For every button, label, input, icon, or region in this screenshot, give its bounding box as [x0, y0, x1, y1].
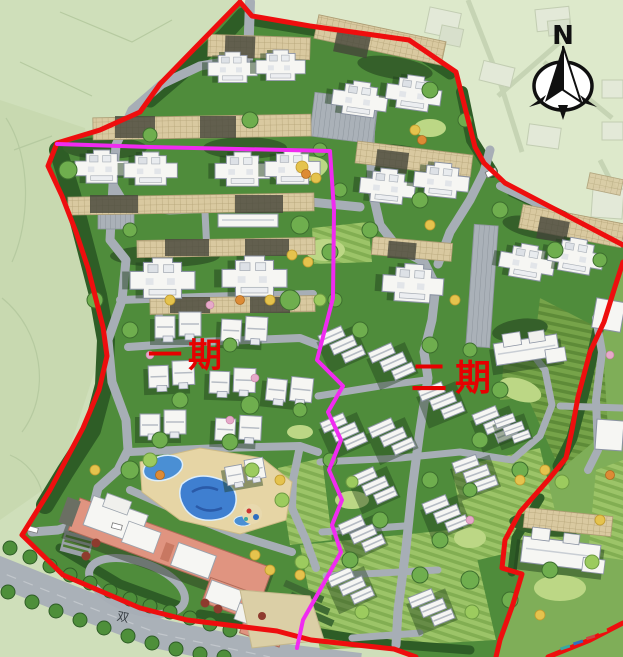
- master-plan-canvas: 双: [0, 0, 623, 657]
- phase2-label: 二期: [411, 358, 499, 399]
- kids-play-area: [242, 504, 262, 524]
- phase1-label: 一期: [148, 336, 228, 376]
- site-plan-map: 双: [0, 0, 623, 657]
